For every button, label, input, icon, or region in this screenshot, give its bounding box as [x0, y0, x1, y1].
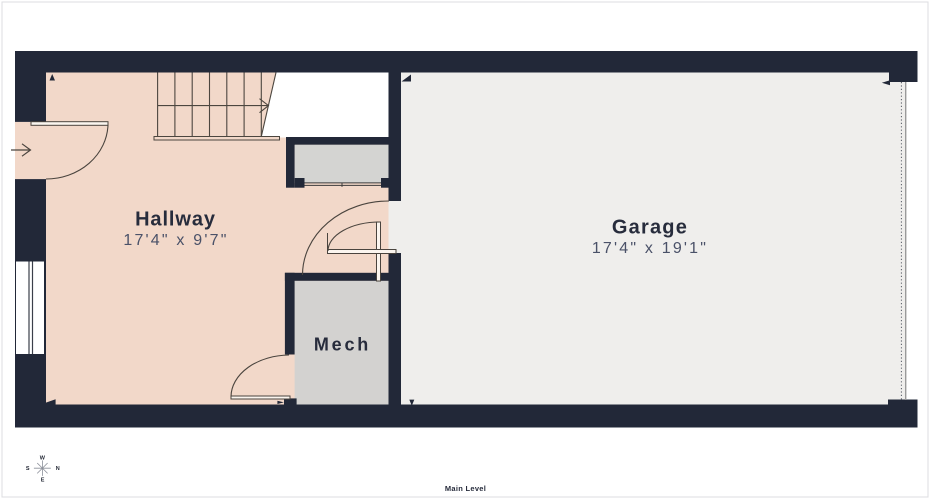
- svg-text:Garage: Garage: [612, 217, 688, 239]
- svg-text:17'4" x 9'7": 17'4" x 9'7": [123, 232, 228, 249]
- svg-text:N: N: [56, 466, 60, 472]
- svg-text:17'4" x 19'1": 17'4" x 19'1": [592, 240, 708, 257]
- svg-text:Main Level: Main Level: [445, 484, 486, 493]
- svg-text:Mech: Mech: [314, 335, 371, 355]
- svg-text:Hallway: Hallway: [135, 209, 216, 231]
- svg-text:W: W: [40, 455, 46, 461]
- svg-text:E: E: [41, 478, 45, 484]
- svg-text:S: S: [26, 466, 30, 472]
